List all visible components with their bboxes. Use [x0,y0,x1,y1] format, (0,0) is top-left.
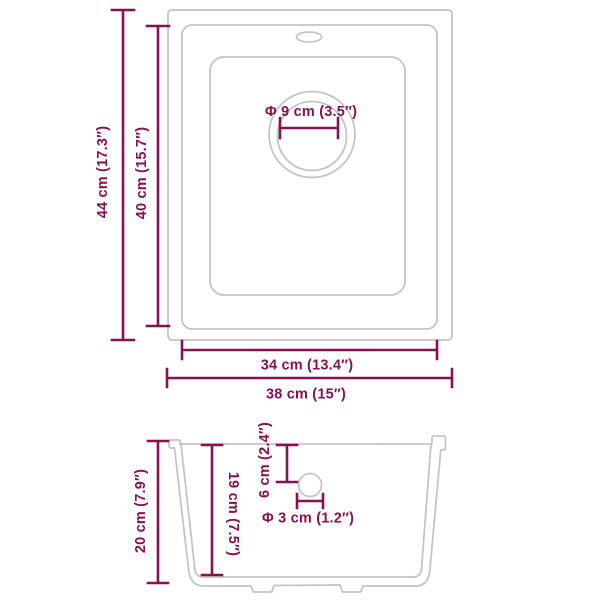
dim-line-total-height [148,441,168,583]
dim-line-inner-width [182,341,437,359]
dim-label-drain-diameter: Φ 9 cm (3.5″) [265,104,357,120]
dim-line-basin-depth [202,445,222,575]
dim-label-drain-hole: Φ 3 cm (1.2″) [262,511,354,527]
dim-label-inner-height: 40 cm (15.7″) [134,127,150,220]
dim-line-drain-offset [277,445,297,482]
dim-line-outer-height [112,10,134,340]
dim-label-total-height: 20 cm (7.9″) [133,469,149,553]
dim-label-outer-width: 38 cm (15″) [266,387,346,403]
dim-label-basin-depth: 19 cm (7.5″) [225,472,241,556]
dim-label-outer-height: 44 cm (17.3″) [95,126,111,219]
drain-outlet [299,474,322,497]
sink-dimension-diagram: 44 cm (17.3″) 40 cm (15.7″) Φ 9 cm (3.5″… [0,0,600,600]
basin-edge [210,57,405,295]
dim-label-drain-offset: 6 cm (2.4″) [257,422,273,498]
side-view: 20 cm (7.9″) 19 cm (7.5″) 6 cm (2.4″) Φ … [133,422,445,592]
top-view: 44 cm (17.3″) 40 cm (15.7″) Φ 9 cm (3.5″… [95,10,452,403]
diagram-canvas: 44 cm (17.3″) 40 cm (15.7″) Φ 9 cm (3.5″… [0,0,600,600]
dim-line-inner-height [147,26,169,326]
dim-label-inner-width: 34 cm (13.4″) [261,358,354,374]
